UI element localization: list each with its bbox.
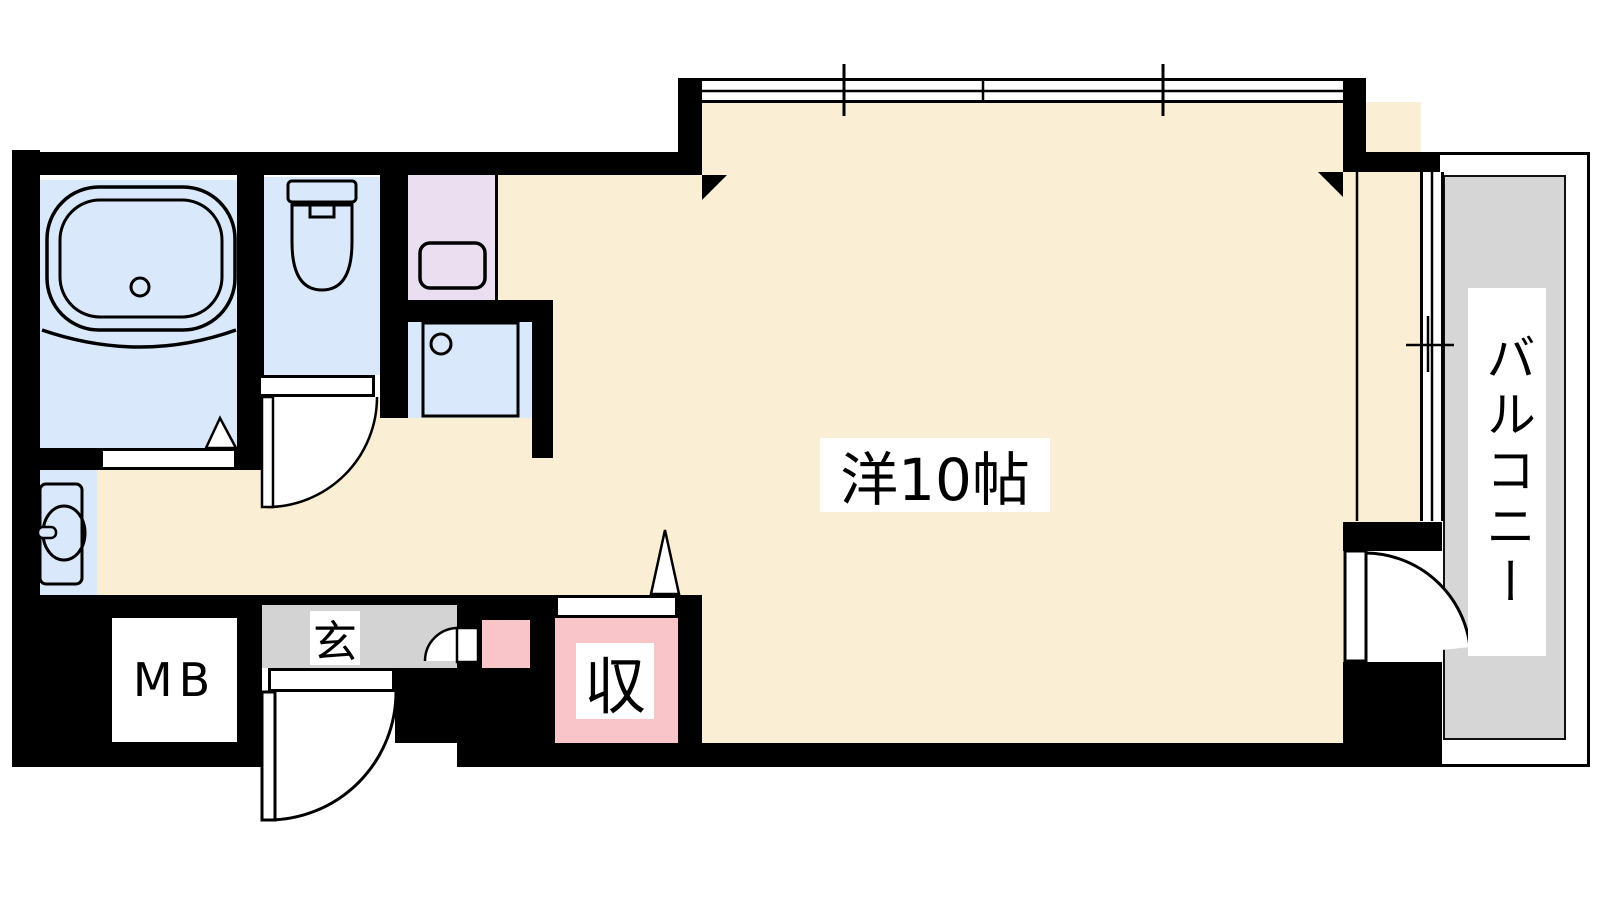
wall-balcony-mid bbox=[1343, 522, 1442, 551]
wall-shoe-left bbox=[457, 620, 482, 668]
meter-box-label: MB bbox=[112, 618, 237, 742]
wall-shoe-top bbox=[457, 595, 530, 620]
genkan-step-edge bbox=[262, 595, 457, 605]
toilet-area bbox=[264, 177, 380, 375]
balcony-door-opening bbox=[1343, 551, 1442, 662]
balcony-label: バルコニー bbox=[1468, 288, 1546, 656]
wall-storage-left bbox=[530, 595, 555, 743]
washing-machine-area bbox=[408, 322, 532, 418]
toilet-door-opening bbox=[258, 375, 375, 397]
entrance-door-swing-icon bbox=[262, 692, 396, 820]
wall-storage-right bbox=[678, 595, 702, 743]
storage-door-opening bbox=[555, 595, 678, 618]
wall-bottom bbox=[457, 743, 1442, 767]
toilet-door-nook-floor bbox=[258, 397, 380, 470]
hallway-floor bbox=[97, 470, 498, 605]
kitchen-area bbox=[407, 175, 498, 300]
shoe-cabinet-area bbox=[482, 620, 530, 668]
entrance-label: 玄 bbox=[310, 611, 360, 665]
wall-right-of-threshold bbox=[395, 668, 457, 743]
entrance-door-threshold bbox=[268, 668, 395, 692]
hallway-floor-patch bbox=[380, 418, 532, 470]
wall-bath-toilet bbox=[237, 152, 264, 470]
main-room-floor-upper bbox=[702, 102, 1421, 175]
bathroom-door-opening bbox=[100, 448, 237, 470]
wall-washpan-right bbox=[532, 322, 553, 458]
main-room-label: 洋10帖 bbox=[820, 438, 1050, 512]
wall-bath-bottom-left bbox=[12, 448, 100, 470]
wall-under-kitchen bbox=[380, 300, 553, 322]
bathroom-area bbox=[40, 180, 237, 448]
wall-balcony-top bbox=[1343, 152, 1440, 172]
wall-balcony-bottom bbox=[1343, 662, 1442, 743]
wall-toilet-kitchen bbox=[380, 152, 408, 418]
wall-shoe-bottom bbox=[457, 668, 530, 743]
storage-label: 収 bbox=[576, 643, 654, 719]
wall-top-left-block bbox=[12, 152, 702, 175]
floor-plan: 洋10帖 バルコニー 玄 収 MB bbox=[0, 0, 1600, 900]
wall-main-room-top-left bbox=[678, 78, 702, 175]
washbasin-area bbox=[38, 470, 97, 595]
